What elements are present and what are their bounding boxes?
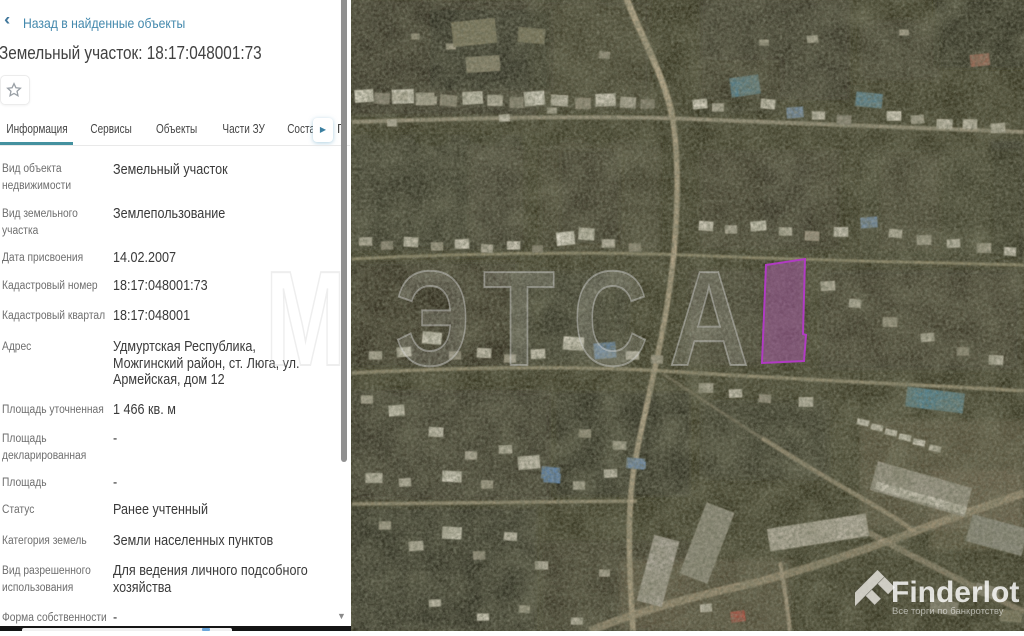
- svg-text:Finderlot: Finderlot: [891, 576, 1019, 609]
- svg-text:Все торги по банкротству: Все торги по банкротству: [892, 606, 1004, 617]
